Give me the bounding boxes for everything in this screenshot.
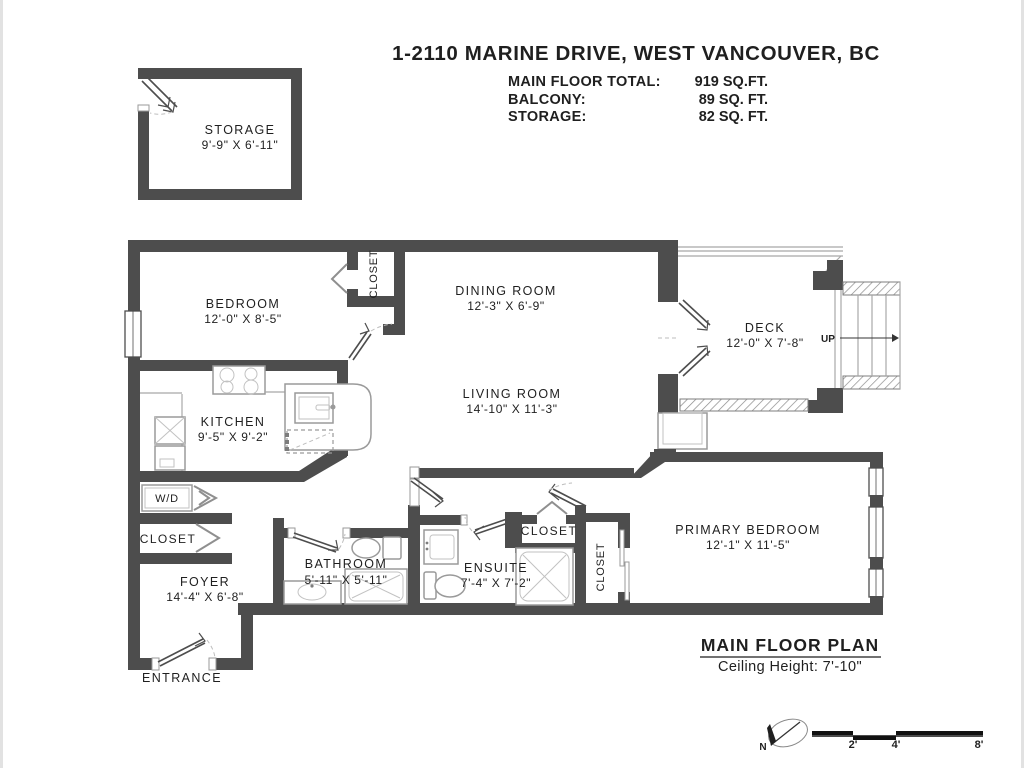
ensuite-toilet — [424, 572, 465, 599]
dining-room: DINING ROOM 12'-3" X 6'-9" — [455, 284, 557, 313]
storage-room: STORAGE 9'-9" X 6'-11" — [138, 68, 302, 200]
living-dims: 14'-10" X 11'-3" — [466, 402, 557, 416]
bathroom: BATHROOM 5'-11" X 5'-11" — [273, 479, 420, 614]
ensuite-door — [465, 517, 508, 540]
ensuite-dims: 7'-4" X 7'-2" — [461, 576, 531, 590]
laundry-closets: W/D CLOSET — [128, 485, 232, 564]
foyer-dims: 14'-4" X 6'-8" — [166, 590, 244, 604]
ceiling-height: Ceiling Height: 7'-10" — [718, 659, 862, 675]
floor-plan-page: 1-2110 MARINE DRIVE, WEST VANCOUVER, BC … — [0, 0, 1024, 768]
entrance-label: ENTRANCE — [142, 671, 222, 685]
bathroom-door — [293, 533, 345, 552]
bedroom-closet-label: CLOSET — [368, 250, 380, 299]
wd-label: W/D — [155, 493, 179, 505]
scale-bar: 2' 4' 8' — [812, 731, 984, 751]
north-arrow: N — [759, 714, 811, 753]
fridge — [155, 417, 185, 444]
kitchen-label: KITCHEN — [201, 415, 266, 429]
storage-dims: 9'-9" X 6'-11" — [202, 138, 279, 152]
primary-closet-label: CLOSET — [595, 543, 607, 592]
kitchen: KITCHEN 9'-5" X 9'-2" — [128, 366, 371, 482]
bathroom-toilet — [352, 537, 401, 559]
page-title: 1-2110 MARINE DRIVE, WEST VANCOUVER, BC — [392, 42, 880, 65]
washer-dryer: W/D — [142, 485, 192, 511]
deck-stairs: UP — [821, 282, 900, 389]
dining-dims: 12'-3" X 6'-9" — [467, 299, 545, 313]
scale-tick-2: 2' — [849, 739, 858, 751]
scale-tick-4: 4' — [892, 739, 901, 751]
foyer-closet-label: CLOSET — [140, 532, 196, 546]
primary-dims: 12'-1" X 11'-5" — [706, 538, 790, 552]
scale-tick-8: 8' — [975, 739, 984, 751]
bedroom: BEDROOM 12'-0" X 8'-5" CLOSET — [204, 250, 405, 360]
ensuite-label: ENSUITE — [464, 561, 528, 575]
entrance-door — [158, 633, 215, 666]
deck-doors — [658, 300, 710, 376]
ensuite-vanity — [424, 530, 458, 564]
deck-dims: 12'-0" X 7'-8" — [726, 336, 804, 350]
bathroom-label: BATHROOM — [305, 557, 388, 571]
area-label-main-floor: MAIN FLOOR TOTAL: — [508, 74, 661, 90]
deck: UP DECK 12'-0" X 7'-8" — [654, 240, 900, 462]
ensuite: ENSUITE 7'-4" X 7'-2" CLOSET — [420, 502, 586, 614]
north-label: N — [759, 742, 766, 753]
foyer-label: FOYER — [180, 575, 230, 589]
area-value-main-floor: 919 SQ.FT. — [695, 74, 768, 90]
bedroom-closet-bifold-door — [332, 264, 347, 293]
wd-bifold-door — [194, 486, 216, 510]
header: 1-2110 MARINE DRIVE, WEST VANCOUVER, BC … — [392, 42, 880, 125]
hall-closet-bifold-door — [537, 502, 567, 514]
kitchen-dims: 9'-5" X 9'-2" — [198, 430, 268, 444]
deck-label: DECK — [745, 321, 785, 335]
bathroom-dims: 5'-11" X 5'-11" — [304, 573, 387, 587]
plan-title-block: MAIN FLOOR PLAN Ceiling Height: 7'-10" — [700, 635, 881, 675]
area-label-balcony: BALCONY: — [508, 92, 586, 108]
dining-label: DINING ROOM — [455, 284, 557, 298]
stove — [213, 366, 265, 394]
foyer-closet-bifold-door — [196, 524, 219, 552]
storage-label: STORAGE — [205, 123, 276, 137]
kitchen-peninsula — [285, 384, 371, 450]
living-label: LIVING ROOM — [463, 387, 562, 401]
left-edge-border — [0, 0, 3, 768]
area-value-balcony: 89 SQ. FT. — [699, 92, 768, 108]
plan-title: MAIN FLOOR PLAN — [701, 635, 879, 655]
hall-closet-label: CLOSET — [521, 524, 577, 538]
bedroom-dims: 12'-0" X 8'-5" — [204, 312, 282, 326]
area-value-storage: 82 SQ. FT. — [699, 109, 768, 125]
area-label-storage: STORAGE: — [508, 109, 587, 125]
deck-railing — [680, 399, 808, 411]
primary-closet-sliding-door — [625, 562, 629, 600]
stairs-up-label: UP — [821, 334, 835, 345]
primary-label: PRIMARY BEDROOM — [675, 523, 821, 537]
primary-closet-sliding-door — [620, 530, 624, 566]
floor-plan-drawing: 1-2110 MARINE DRIVE, WEST VANCOUVER, BC … — [0, 0, 1024, 768]
bedroom-label: BEDROOM — [206, 297, 280, 311]
